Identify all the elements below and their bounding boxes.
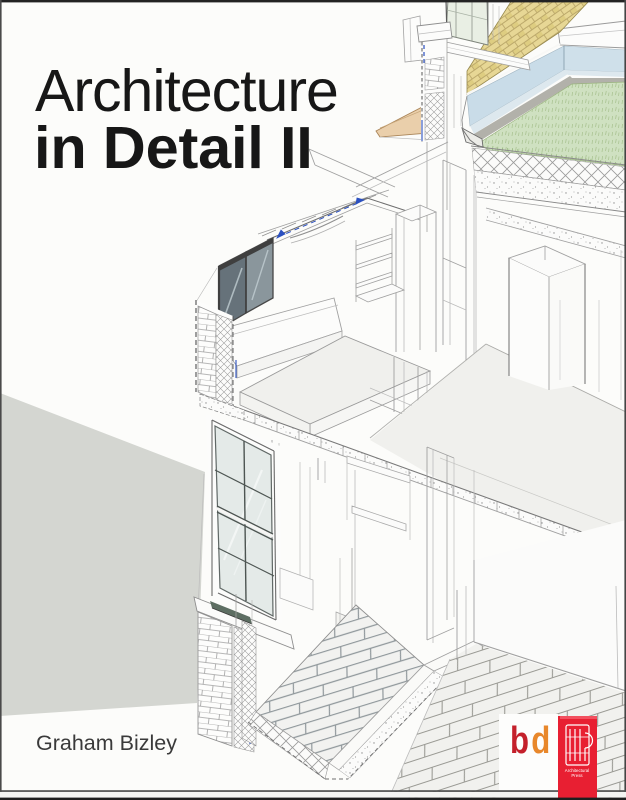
svg-text:d: d xyxy=(531,720,550,762)
svg-text:in Detail II: in Detail II xyxy=(34,114,313,181)
svg-text:Graham Bizley: Graham Bizley xyxy=(36,731,177,755)
svg-text:Press: Press xyxy=(571,773,583,778)
svg-text:b: b xyxy=(510,720,529,762)
